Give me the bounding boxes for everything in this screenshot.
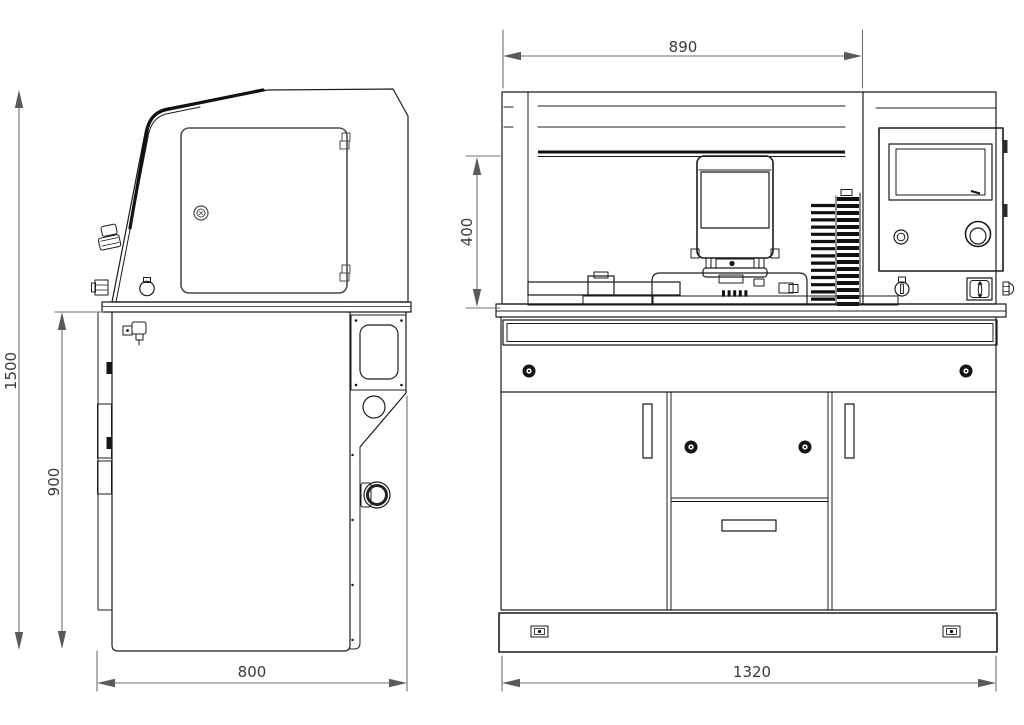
table-platform bbox=[652, 273, 807, 305]
dim-label-800: 800 bbox=[238, 663, 267, 681]
hood-knob-icon bbox=[140, 278, 154, 296]
rotary-knob-icon bbox=[966, 222, 991, 247]
hinge-mark-icon bbox=[107, 362, 112, 374]
table-rail bbox=[528, 282, 680, 295]
door-hinge-top-icon bbox=[340, 133, 350, 149]
left-door-handle bbox=[643, 404, 652, 458]
latch-knob-icon bbox=[960, 365, 973, 378]
access-door bbox=[181, 128, 350, 293]
rear-panel bbox=[350, 312, 406, 649]
technical-drawing: 1500 900 800 890 400 bbox=[0, 0, 1024, 725]
enclosure-front bbox=[502, 92, 996, 304]
plinth-vent-icon bbox=[943, 626, 960, 637]
tabletop-side bbox=[102, 302, 411, 312]
dim-label-890: 890 bbox=[669, 38, 698, 56]
stylus-icon bbox=[971, 191, 980, 194]
side-inset-panel bbox=[98, 461, 112, 494]
door-hinge-bottom-icon bbox=[340, 265, 350, 281]
side-inset-panel bbox=[98, 404, 112, 458]
hood-enclosure bbox=[112, 89, 408, 302]
rear-knob-icon bbox=[361, 482, 390, 508]
hinge-mark-icon bbox=[107, 437, 112, 449]
dim-overall-height: 1500 bbox=[2, 90, 23, 650]
tabletop-front bbox=[496, 304, 1006, 317]
dim-label-900: 900 bbox=[45, 468, 63, 497]
main-power-switch-icon bbox=[967, 278, 992, 300]
door-lock-icon bbox=[194, 206, 208, 220]
control-panel bbox=[879, 128, 1003, 271]
dim-label-1500: 1500 bbox=[2, 352, 20, 390]
dim-label-1320: 1320 bbox=[733, 663, 771, 681]
base-cabinet-front bbox=[499, 317, 997, 652]
latch-knob-icon bbox=[799, 441, 812, 454]
latch-knob-icon bbox=[685, 441, 698, 454]
drawing-canvas: 1500 900 800 890 400 bbox=[0, 0, 1024, 725]
touchscreen bbox=[896, 149, 985, 195]
vent-hole-icon bbox=[363, 396, 385, 418]
right-door-handle bbox=[845, 404, 854, 458]
drawer-handle bbox=[722, 520, 776, 531]
power-inlet-icon bbox=[92, 280, 109, 295]
dim-overall-width: 1320 bbox=[502, 656, 996, 691]
viewing-window bbox=[538, 106, 845, 157]
rear-cutout-opening bbox=[360, 325, 398, 379]
side-view bbox=[92, 89, 412, 651]
cable-gland-icon bbox=[96, 224, 121, 251]
dim-label-400: 400 bbox=[458, 218, 476, 247]
dim-cabinet-height: 900 bbox=[45, 312, 103, 649]
key-switch-icon bbox=[895, 277, 909, 296]
base-cabinet-side bbox=[98, 312, 407, 651]
louver-stack bbox=[811, 190, 860, 306]
dim-enclosure-width: 890 bbox=[503, 30, 863, 88]
sensor-bracket-icon bbox=[123, 322, 146, 345]
latch-knob-icon bbox=[523, 365, 536, 378]
motor-window bbox=[701, 172, 769, 228]
power-button-icon bbox=[894, 230, 908, 244]
dimensions: 1500 900 800 890 400 bbox=[2, 30, 996, 691]
plinth-vent-icon bbox=[531, 626, 548, 637]
dim-chamber-height: 400 bbox=[458, 156, 500, 308]
front-view bbox=[496, 92, 1014, 652]
side-connector-icon bbox=[1003, 282, 1014, 295]
clamp-fixture bbox=[588, 276, 614, 295]
plinth bbox=[499, 613, 997, 652]
